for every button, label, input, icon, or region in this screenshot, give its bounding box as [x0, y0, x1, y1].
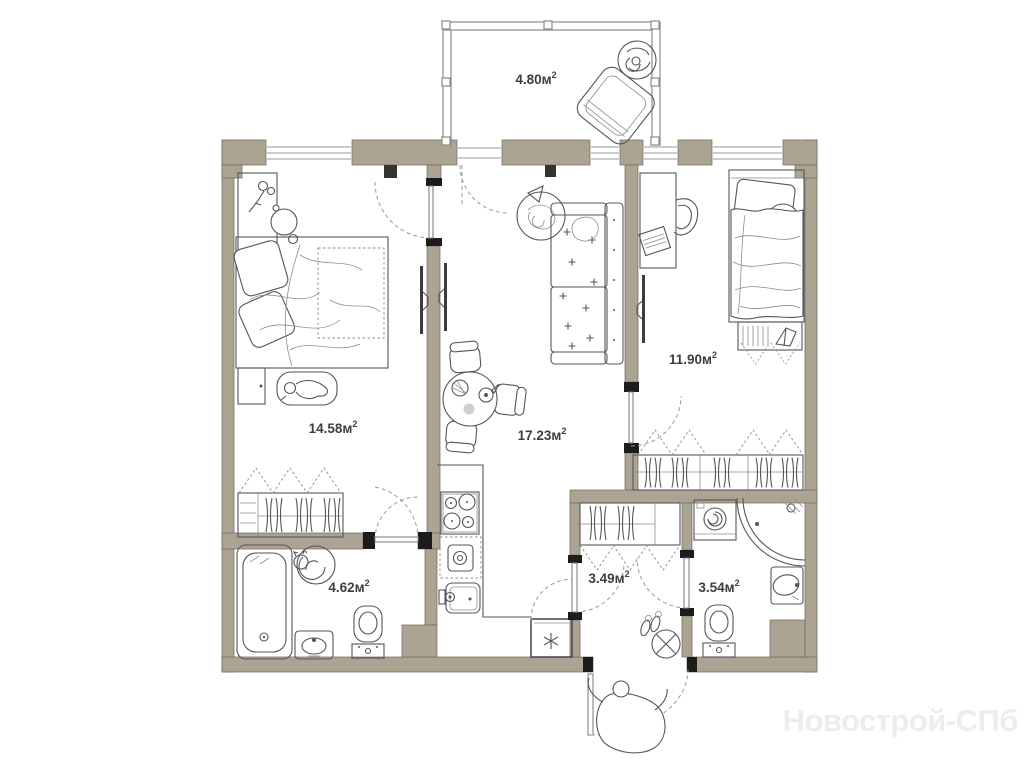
- washing-machine: [694, 500, 736, 540]
- hob: [441, 492, 479, 534]
- bedroom-second-door: [624, 382, 681, 453]
- bed-bench: [277, 372, 337, 405]
- nightstand: [238, 368, 265, 404]
- balcony-door: [460, 165, 508, 213]
- hall-wardrobe: [580, 503, 680, 570]
- bathroom-main-toilet: [352, 606, 384, 658]
- bedroom-main-door: [375, 178, 442, 246]
- desk: [639, 173, 698, 268]
- underbed-drawer: [738, 322, 802, 364]
- bedroom-main-area-label: 14.58м2: [309, 419, 358, 436]
- dining-table: [443, 372, 499, 426]
- floor-plan-page: 4.80м2: [0, 0, 1024, 768]
- kitchen-counter: [437, 465, 531, 617]
- bathroom-main-area-label: 4.62м2: [328, 578, 369, 595]
- bathroom-main-sink: [295, 631, 333, 659]
- hallway-area-label: 3.49м2: [588, 569, 629, 586]
- hall-door: [568, 555, 624, 620]
- shower: [737, 498, 805, 566]
- single-bed: [729, 170, 804, 322]
- stool: [271, 205, 298, 244]
- sleeping-cat: [294, 546, 335, 584]
- balcony: 4.80м2: [442, 21, 660, 148]
- wardrobe-main: [238, 468, 343, 537]
- balcony-area-label: 4.80м2: [515, 70, 556, 87]
- fridge: [531, 579, 572, 657]
- kitchen-sink: [439, 583, 480, 613]
- bathtub: [237, 545, 292, 659]
- hallway: 3.49м2: [568, 503, 697, 753]
- hanging-chair: [517, 186, 565, 240]
- pouf: [652, 630, 680, 658]
- bathroom-second-door: [637, 550, 694, 616]
- bedroom-main: 14.58м2: [232, 173, 442, 537]
- dishwasher: [440, 537, 481, 578]
- slippers: [639, 610, 663, 636]
- bathroom-main-door: [363, 487, 432, 549]
- floor-plan-svg: 4.80м2: [0, 0, 1024, 768]
- living-area-label: 17.23м2: [518, 426, 567, 443]
- watermark: Новострой-СПб: [783, 703, 1019, 739]
- bathroom-second-area-label: 3.54м2: [698, 578, 739, 595]
- bedroom-second-area-label: 11.90м2: [669, 350, 717, 367]
- person-figure: [588, 678, 667, 753]
- double-bed: [232, 237, 388, 368]
- bathroom-second-sink: [771, 567, 803, 604]
- bathroom-second-toilet: [703, 605, 735, 657]
- lounge-chair: [573, 63, 659, 148]
- wardrobe-second: [633, 430, 803, 490]
- bedroom-second: 11.90м2: [624, 170, 804, 490]
- dresser: [238, 173, 277, 252]
